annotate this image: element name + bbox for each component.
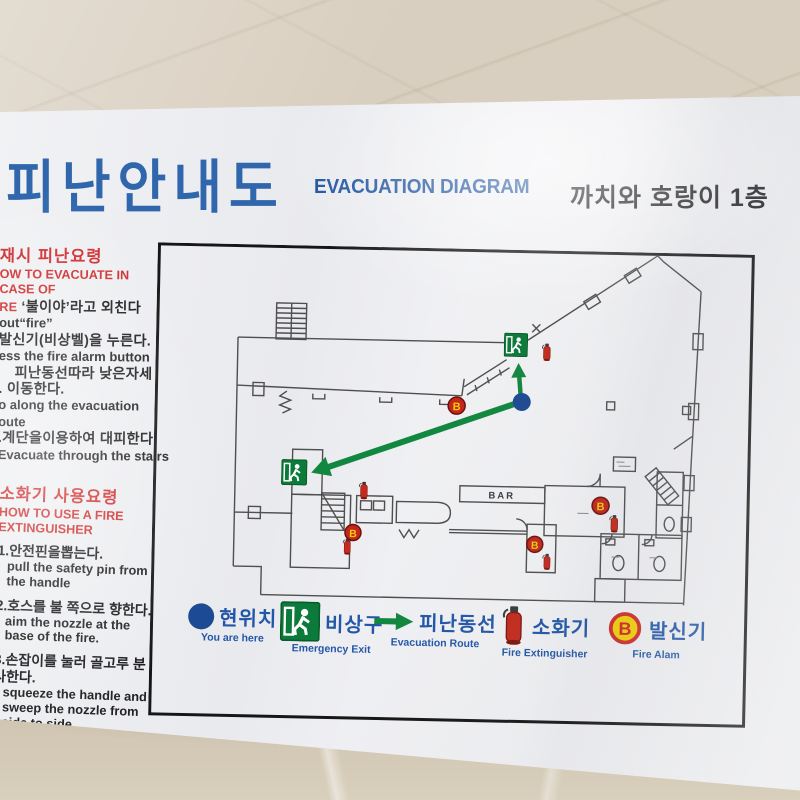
fire-alarm-icon: B <box>345 524 361 540</box>
instruction-line: RE‘불이야’라고 외친다 <box>0 299 163 317</box>
evac-heading-korean: 재시 피난요령 <box>0 242 164 268</box>
svg-text:B: B <box>596 501 604 513</box>
evacuation-sign-panel: 피난안내도 EVACUATION DIAGRAM 까치와 호랑이 1층 재시 피… <box>0 90 800 800</box>
instruction-line: o along the evacuation <box>0 397 162 415</box>
evacuation-route-arrow <box>311 400 515 480</box>
emergency-exit-icon <box>282 460 307 485</box>
heading-fragment: RE <box>0 300 18 314</box>
fire-extinguisher-icon <box>359 482 367 500</box>
floor-plan: BAR B B <box>148 242 756 732</box>
svg-text:B: B <box>531 540 539 552</box>
instruction-line: 피난동선따라 낮은자세 <box>0 365 163 383</box>
svg-text:B: B <box>453 401 461 413</box>
evacuation-route-arrow-icon <box>374 609 414 632</box>
fire-extinguisher-icon <box>610 515 618 533</box>
photo-of-evacuation-sign: 피난안내도 EVACUATION DIAGRAM 까치와 호랑이 1층 재시 피… <box>0 0 800 800</box>
legend-item-fire-alarm: B 발신기 Fire Alam <box>605 609 707 662</box>
instruction-line: .계단을이용하여 대피한다. <box>0 430 162 448</box>
extinguisher-step: 1.안전핀을뽑는다. pull the safety pin from the … <box>0 542 162 594</box>
extinguisher-instructions-section: 소화기 사용요령 HOW TO USE A FIRE EXTINGUISHER … <box>0 480 164 743</box>
evac-heading-english: OW TO EVACUATE IN CASE OF <box>0 267 164 298</box>
legend-item-evacuation-route: 피난동선 Evacuation Route <box>374 606 497 651</box>
emergency-exit-icon <box>504 333 527 356</box>
svg-text:B: B <box>349 528 357 540</box>
fire-alarm-icon: B <box>448 397 465 414</box>
you-are-here-dot-icon <box>188 603 215 630</box>
evac-instruction-lines: RE‘불이야’라고 외친다 out“fire” 발신기(비상벨)을 누른다. e… <box>0 299 163 465</box>
plan-legend: 현위치 You are here 비상구 Emergency Exit 피난동선 <box>149 598 748 673</box>
plan-walls <box>233 247 705 606</box>
evacuation-instructions-section: 재시 피난요령 OW TO EVACUATE IN CASE OF RE‘불이야… <box>0 242 164 465</box>
fire-extinguisher-icon <box>543 554 551 570</box>
instruction-line: out“fire” <box>0 315 163 333</box>
legend-item-you-are-here: 현위치 You are here <box>188 601 278 645</box>
instruction-line: ess the fire alarm button <box>0 348 163 366</box>
extinguisher-step: 2.호스를 불 쪽으로 향한다. aim the nozzle at the b… <box>0 597 160 649</box>
location-label: 까치와 호랑이 1층 <box>570 178 769 214</box>
you-are-here-dot <box>513 393 531 411</box>
fire-alarm-icon: B <box>527 536 543 552</box>
bar-label: BAR <box>488 490 515 502</box>
svg-text:B: B <box>618 619 631 639</box>
fire-extinguisher-icon <box>500 604 528 647</box>
instruction-line: Evacuate through the stairs <box>0 447 162 465</box>
instruction-line: oute <box>0 414 162 432</box>
fire-alarm-icon: B <box>606 609 645 648</box>
emergency-exit-icon <box>280 601 321 642</box>
page-title-korean: 피난안내도 <box>6 142 285 224</box>
fire-alarm-icon: B <box>592 497 609 514</box>
page-title-english: EVACUATION DIAGRAM <box>314 176 529 199</box>
instruction-line: . 이동한다. <box>0 381 163 399</box>
fire-extinguisher-icon <box>542 344 550 362</box>
legend-item-fire-extinguisher: 소화기 Fire Extinguisher <box>499 604 590 661</box>
evacuation-route-arrow <box>511 363 527 398</box>
legend-item-emergency-exit: 비상구 Emergency Exit <box>279 601 383 656</box>
instruction-line: 발신기(비상벨)을 누른다. <box>0 332 163 350</box>
